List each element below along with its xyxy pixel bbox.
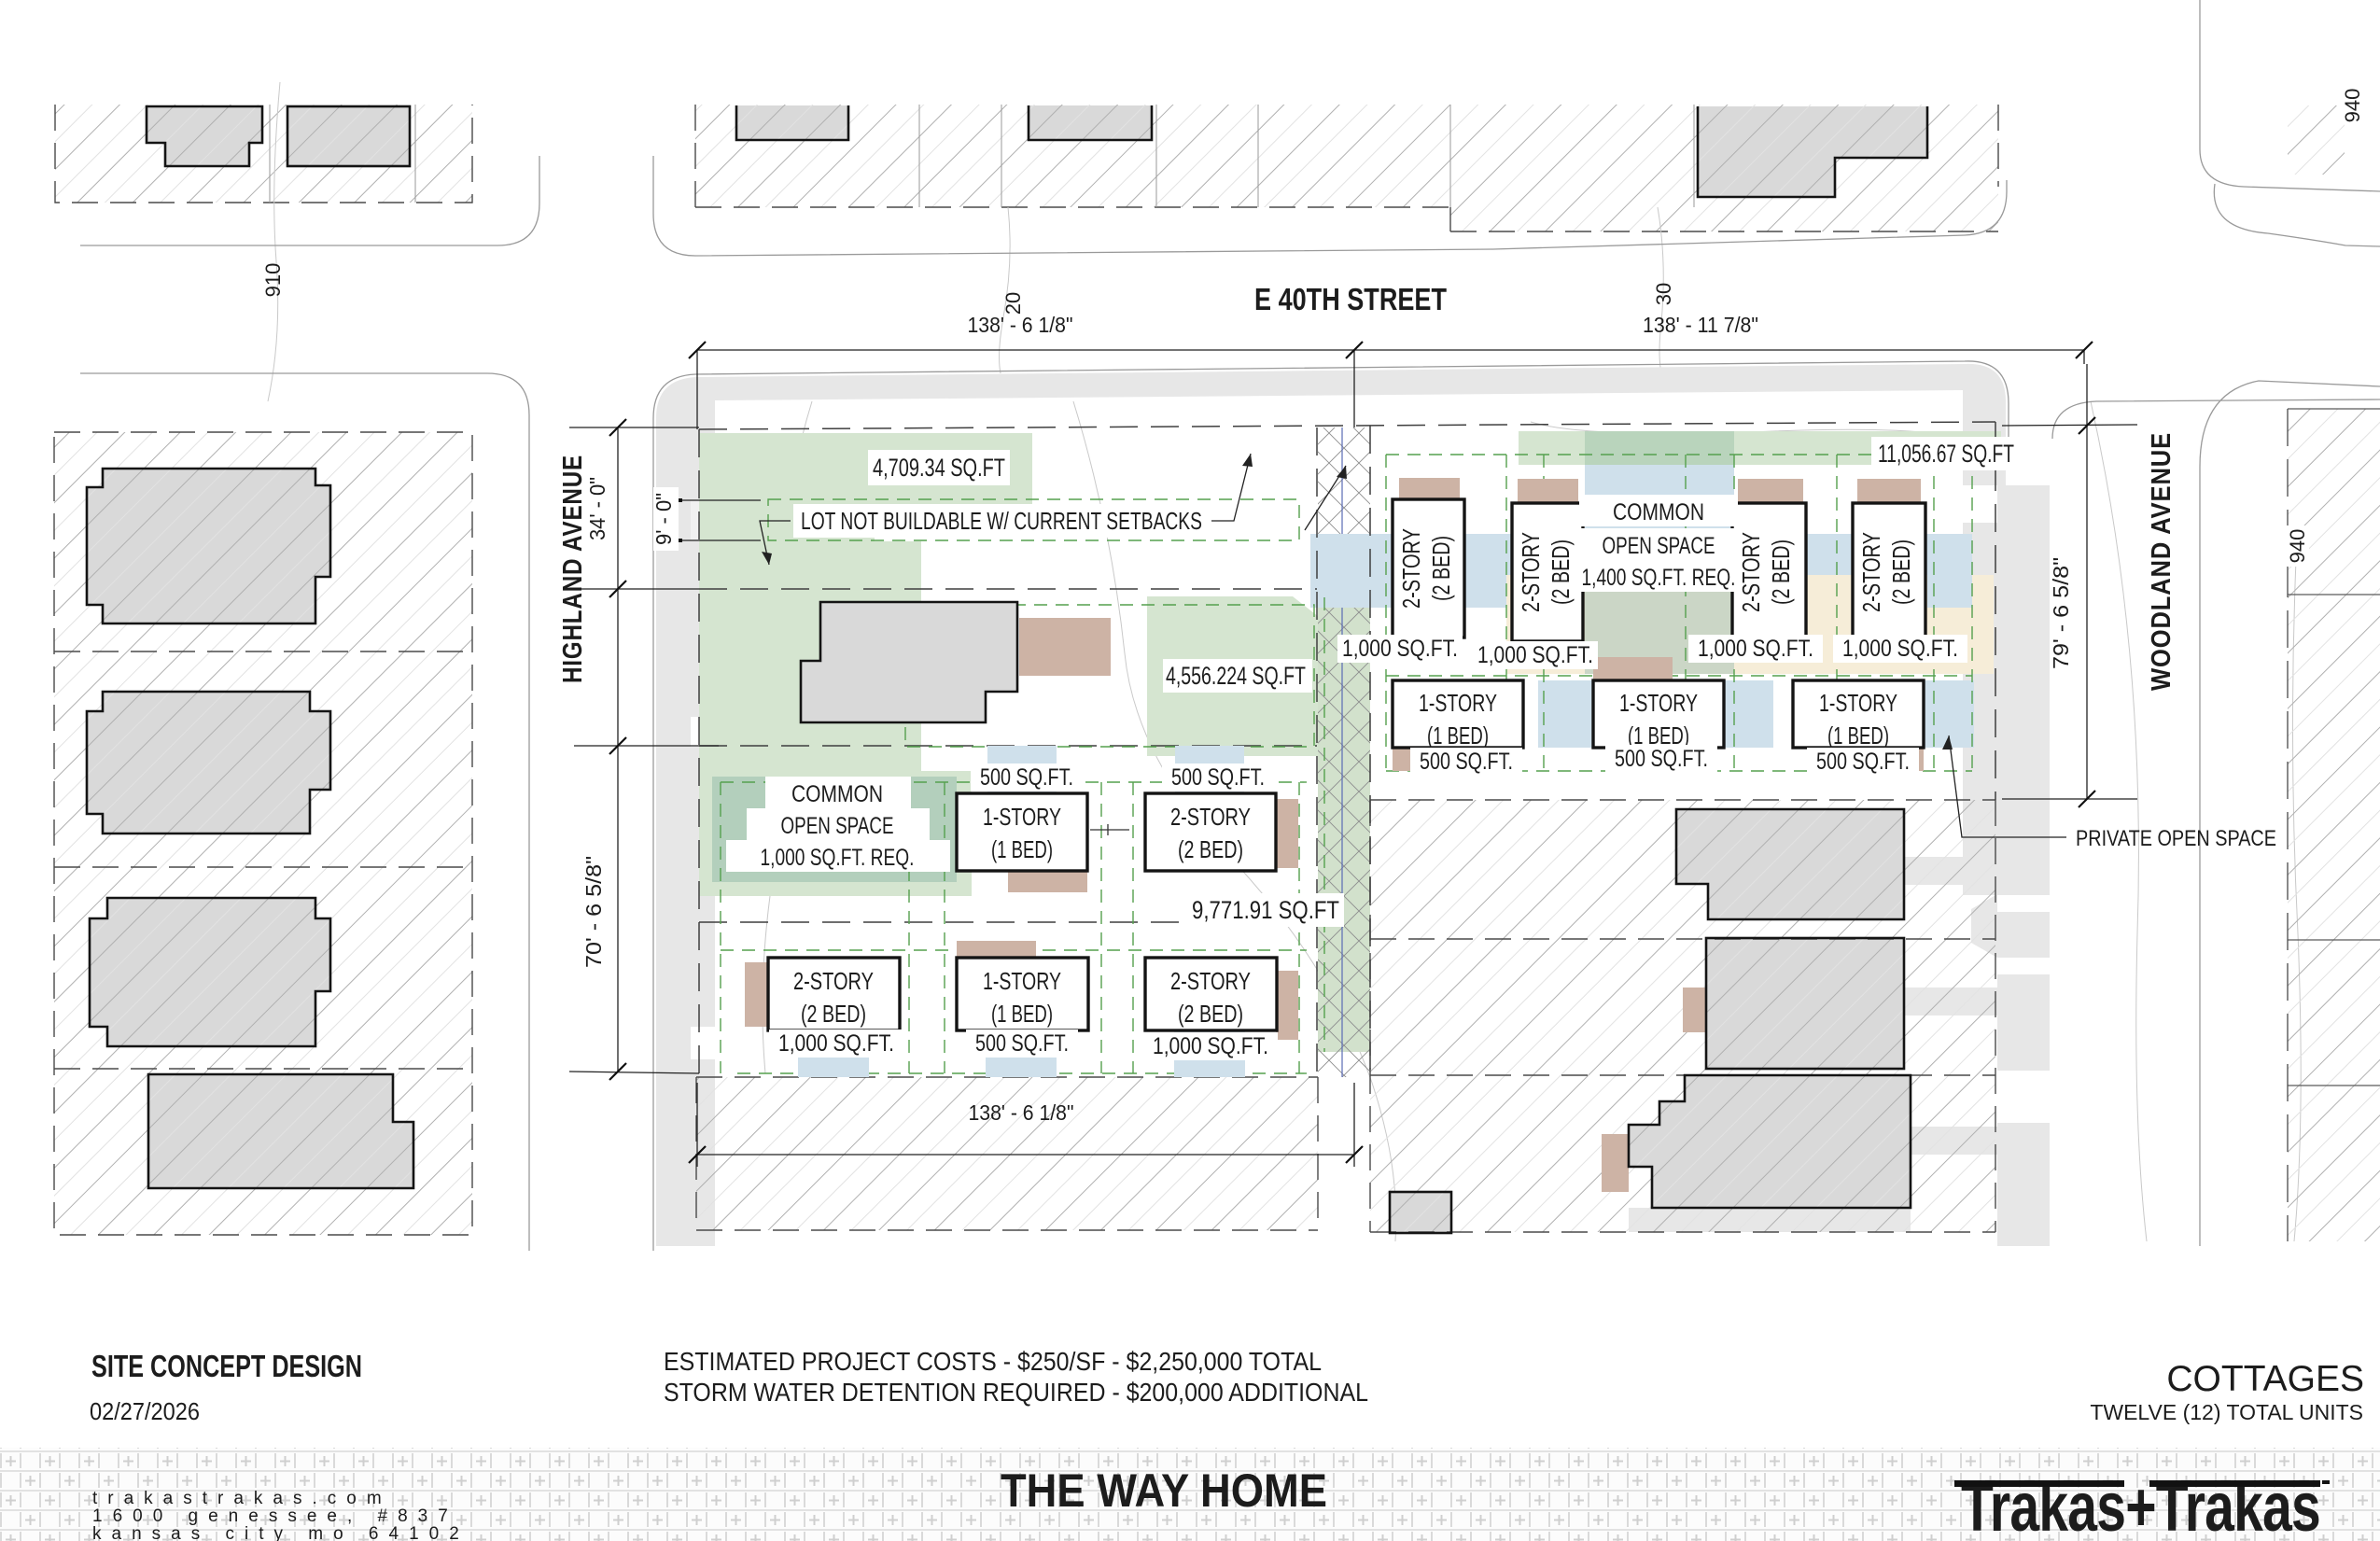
svg-text:(2 BED): (2 BED) <box>1178 835 1243 863</box>
svg-text:OPEN SPACE: OPEN SPACE <box>1603 533 1715 559</box>
svg-text:1600 genessee, #837: 1600 genessee, #837 <box>92 1506 458 1526</box>
svg-text:LOT NOT BUILDABLE W/ CURRENT S: LOT NOT BUILDABLE W/ CURRENT SETBACKS <box>801 507 1202 535</box>
svg-text:(2 BED): (2 BED) <box>1547 539 1575 605</box>
svg-text:30: 30 <box>1652 283 1675 305</box>
svg-text:1,000 SQ.FT. REQ.: 1,000 SQ.FT. REQ. <box>761 845 915 871</box>
svg-text:500 SQ.FT.: 500 SQ.FT. <box>975 1030 1069 1057</box>
svg-text:500 SQ.FT.: 500 SQ.FT. <box>1816 749 1910 775</box>
svg-text:COTTAGES: COTTAGES <box>2166 1359 2364 1399</box>
svg-text:20: 20 <box>1001 292 1025 315</box>
svg-text:70' - 6 5/8": 70' - 6 5/8" <box>581 856 606 968</box>
svg-text:9,771.91 SQ.FT: 9,771.91 SQ.FT <box>1192 896 1339 924</box>
svg-text:1,000 SQ.FT.: 1,000 SQ.FT. <box>1342 636 1458 662</box>
svg-text:2-STORY: 2-STORY <box>1170 967 1251 995</box>
svg-text:E 40TH STREET: E 40TH STREET <box>1254 282 1447 316</box>
svg-text:1,000 SQ.FT.: 1,000 SQ.FT. <box>778 1030 894 1057</box>
svg-text:(1 BED): (1 BED) <box>1427 721 1489 749</box>
svg-text:500 SQ.FT.: 500 SQ.FT. <box>980 764 1073 791</box>
svg-text:2-STORY: 2-STORY <box>793 967 874 995</box>
svg-text:11,056.67 SQ.FT: 11,056.67 SQ.FT <box>1878 440 2014 468</box>
svg-text:(2 BED): (2 BED) <box>1427 536 1455 601</box>
svg-text:9' - 0": 9' - 0" <box>651 493 676 545</box>
svg-text:1-STORY: 1-STORY <box>983 803 1061 831</box>
svg-text:2-STORY: 2-STORY <box>1857 532 1885 612</box>
svg-text:(2 BED): (2 BED) <box>801 1000 866 1028</box>
svg-text:COMMON: COMMON <box>791 781 883 807</box>
svg-text:Trakas+Trakas: Trakas+Trakas <box>1961 1468 2320 1541</box>
svg-text:SITE CONCEPT DESIGN: SITE CONCEPT DESIGN <box>91 1349 362 1383</box>
svg-text:(1 BED): (1 BED) <box>1827 721 1889 749</box>
svg-text:STORM WATER DETENTION REQUIRED: STORM WATER DETENTION REQUIRED - $200,00… <box>664 1378 1368 1407</box>
svg-text:02/27/2026: 02/27/2026 <box>90 1397 200 1425</box>
svg-text:(2 BED): (2 BED) <box>1178 1000 1243 1028</box>
svg-text:34' - 0": 34' - 0" <box>585 477 609 540</box>
svg-text:1,000 SQ.FT.: 1,000 SQ.FT. <box>1698 636 1813 662</box>
svg-text:WOODLAND AVENUE: WOODLAND AVENUE <box>2147 432 2177 691</box>
svg-text:(2 BED): (2 BED) <box>1887 539 1915 605</box>
svg-text:910: 910 <box>261 263 285 298</box>
svg-text:2-STORY: 2-STORY <box>1517 532 1545 612</box>
svg-text:2-STORY: 2-STORY <box>1170 803 1251 831</box>
svg-text:TWELVE (12) TOTAL UNITS: TWELVE (12) TOTAL UNITS <box>2090 1400 2363 1424</box>
svg-text:(1 BED): (1 BED) <box>991 1000 1053 1028</box>
svg-text:500 SQ.FT.: 500 SQ.FT. <box>1420 749 1513 775</box>
svg-text:1-STORY: 1-STORY <box>1819 689 1897 717</box>
svg-text:1,000 SQ.FT.: 1,000 SQ.FT. <box>1153 1033 1268 1059</box>
svg-text:HIGHLAND AVENUE: HIGHLAND AVENUE <box>558 455 588 683</box>
svg-text:138' - 6 1/8": 138' - 6 1/8" <box>968 313 1073 337</box>
svg-text:(1 BED): (1 BED) <box>991 835 1053 863</box>
svg-text:ESTIMATED PROJECT COSTS - $250: ESTIMATED PROJECT COSTS - $250/SF - $2,2… <box>664 1347 1322 1376</box>
svg-text:2-STORY: 2-STORY <box>1397 528 1425 609</box>
svg-text:79' - 6 5/8": 79' - 6 5/8" <box>2049 557 2073 669</box>
svg-text:500 SQ.FT.: 500 SQ.FT. <box>1171 764 1265 791</box>
svg-text:138' - 6 1/8": 138' - 6 1/8" <box>969 1100 1074 1125</box>
svg-text:4,709.34 SQ.FT: 4,709.34 SQ.FT <box>873 454 1005 482</box>
svg-text:940: 940 <box>2286 529 2309 564</box>
svg-text:1-STORY: 1-STORY <box>1619 689 1698 717</box>
svg-text:kansas city mo 64102: kansas city mo 64102 <box>92 1524 469 1541</box>
svg-text:THE WAY HOME: THE WAY HOME <box>1001 1464 1327 1517</box>
svg-text:4,556.224 SQ.FT: 4,556.224 SQ.FT <box>1166 662 1306 690</box>
svg-text:1-STORY: 1-STORY <box>1419 689 1497 717</box>
svg-text:138' - 11 7/8": 138' - 11 7/8" <box>1643 313 1758 337</box>
svg-text:500 SQ.FT.: 500 SQ.FT. <box>1615 746 1708 772</box>
svg-text:trakastrakas.com: trakastrakas.com <box>92 1489 392 1508</box>
svg-text:1,000 SQ.FT.: 1,000 SQ.FT. <box>1842 636 1958 662</box>
svg-text:1-STORY: 1-STORY <box>983 967 1061 995</box>
svg-text:(2 BED): (2 BED) <box>1767 539 1795 605</box>
svg-text:OPEN SPACE: OPEN SPACE <box>781 813 894 839</box>
svg-text:1,000 SQ.FT.: 1,000 SQ.FT. <box>1477 642 1593 668</box>
svg-text:2-STORY: 2-STORY <box>1737 532 1765 612</box>
svg-text:COMMON: COMMON <box>1613 499 1704 525</box>
svg-text:PRIVATE OPEN SPACE: PRIVATE OPEN SPACE <box>2076 826 2276 851</box>
svg-text:1,400 SQ.FT. REQ.: 1,400 SQ.FT. REQ. <box>1582 565 1736 591</box>
svg-text:940: 940 <box>2341 89 2364 123</box>
